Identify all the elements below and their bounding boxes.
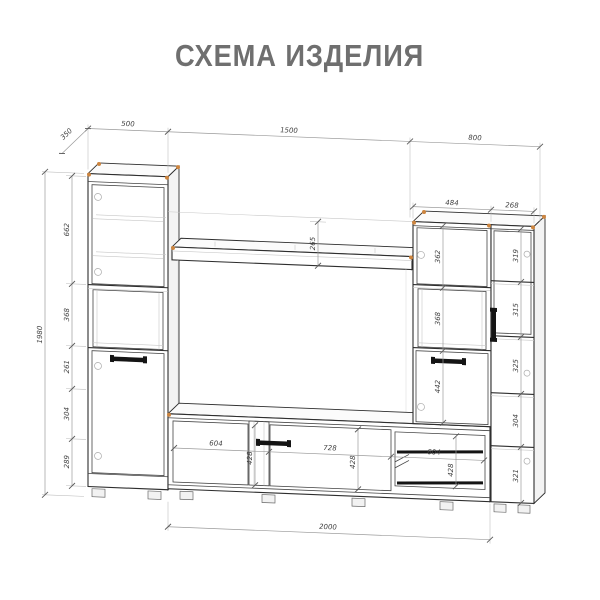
dim-left-section: 368: [63, 307, 71, 321]
dim-right-side-width: 268: [505, 201, 519, 210]
cabinet-foot: [180, 491, 193, 500]
dim-left-section: 289: [63, 454, 71, 468]
dim-stand-width: 604: [427, 448, 440, 457]
dim-right-side-section: 325: [512, 358, 520, 372]
dim-total-height: 1980: [36, 325, 44, 344]
dim-right-side-section: 315: [512, 302, 520, 316]
schematic-page: СХЕМА ИЗДЕЛИЯ: [0, 0, 600, 600]
cabinet-foot: [494, 504, 506, 512]
dim-left-section: 662: [63, 222, 71, 236]
dim-stand-total-width: 2000: [319, 523, 337, 532]
dim-left-section: 261: [63, 360, 71, 374]
dim-right-center-section: 368: [434, 311, 442, 325]
product-drawing: 500 1500 800 350 1980: [0, 0, 600, 600]
dim-stand-width: 728: [323, 444, 337, 453]
back-rail: [168, 212, 413, 222]
cabinet-foot: [352, 498, 365, 507]
cabinet-foot: [148, 491, 161, 500]
dim-center-width: 1500: [280, 126, 298, 135]
dim-stand-height: 428: [246, 451, 254, 465]
cabinet-foot: [92, 489, 105, 498]
left-cabinet: [88, 163, 179, 501]
dim-stand-width: 604: [209, 439, 222, 448]
dim-stand-height: 428: [447, 463, 455, 477]
dim-left-section: 304: [63, 407, 71, 421]
dim-right-side-section: 319: [512, 248, 520, 262]
dim-stand-height: 428: [349, 455, 357, 469]
dim-right-side-section: 304: [512, 414, 520, 428]
cabinet-foot: [518, 505, 530, 513]
dim-right-side-section: 321: [512, 469, 520, 483]
cabinet-foot: [440, 502, 453, 511]
dim-right-center-section: 362: [434, 249, 442, 263]
drawing-skew-group: 500 1500 800 350 1980: [36, 116, 546, 545]
cabinet-foot: [262, 495, 275, 504]
wall-shelf: [172, 238, 421, 270]
dim-right-width: 800: [468, 134, 482, 143]
dim-right-upper-width: 484: [445, 199, 458, 208]
dim-left-width: 500: [121, 120, 135, 129]
dim-shelf-height: 265: [309, 236, 317, 250]
dim-right-center-section: 442: [434, 379, 442, 393]
dim-depth: 350: [59, 126, 74, 141]
